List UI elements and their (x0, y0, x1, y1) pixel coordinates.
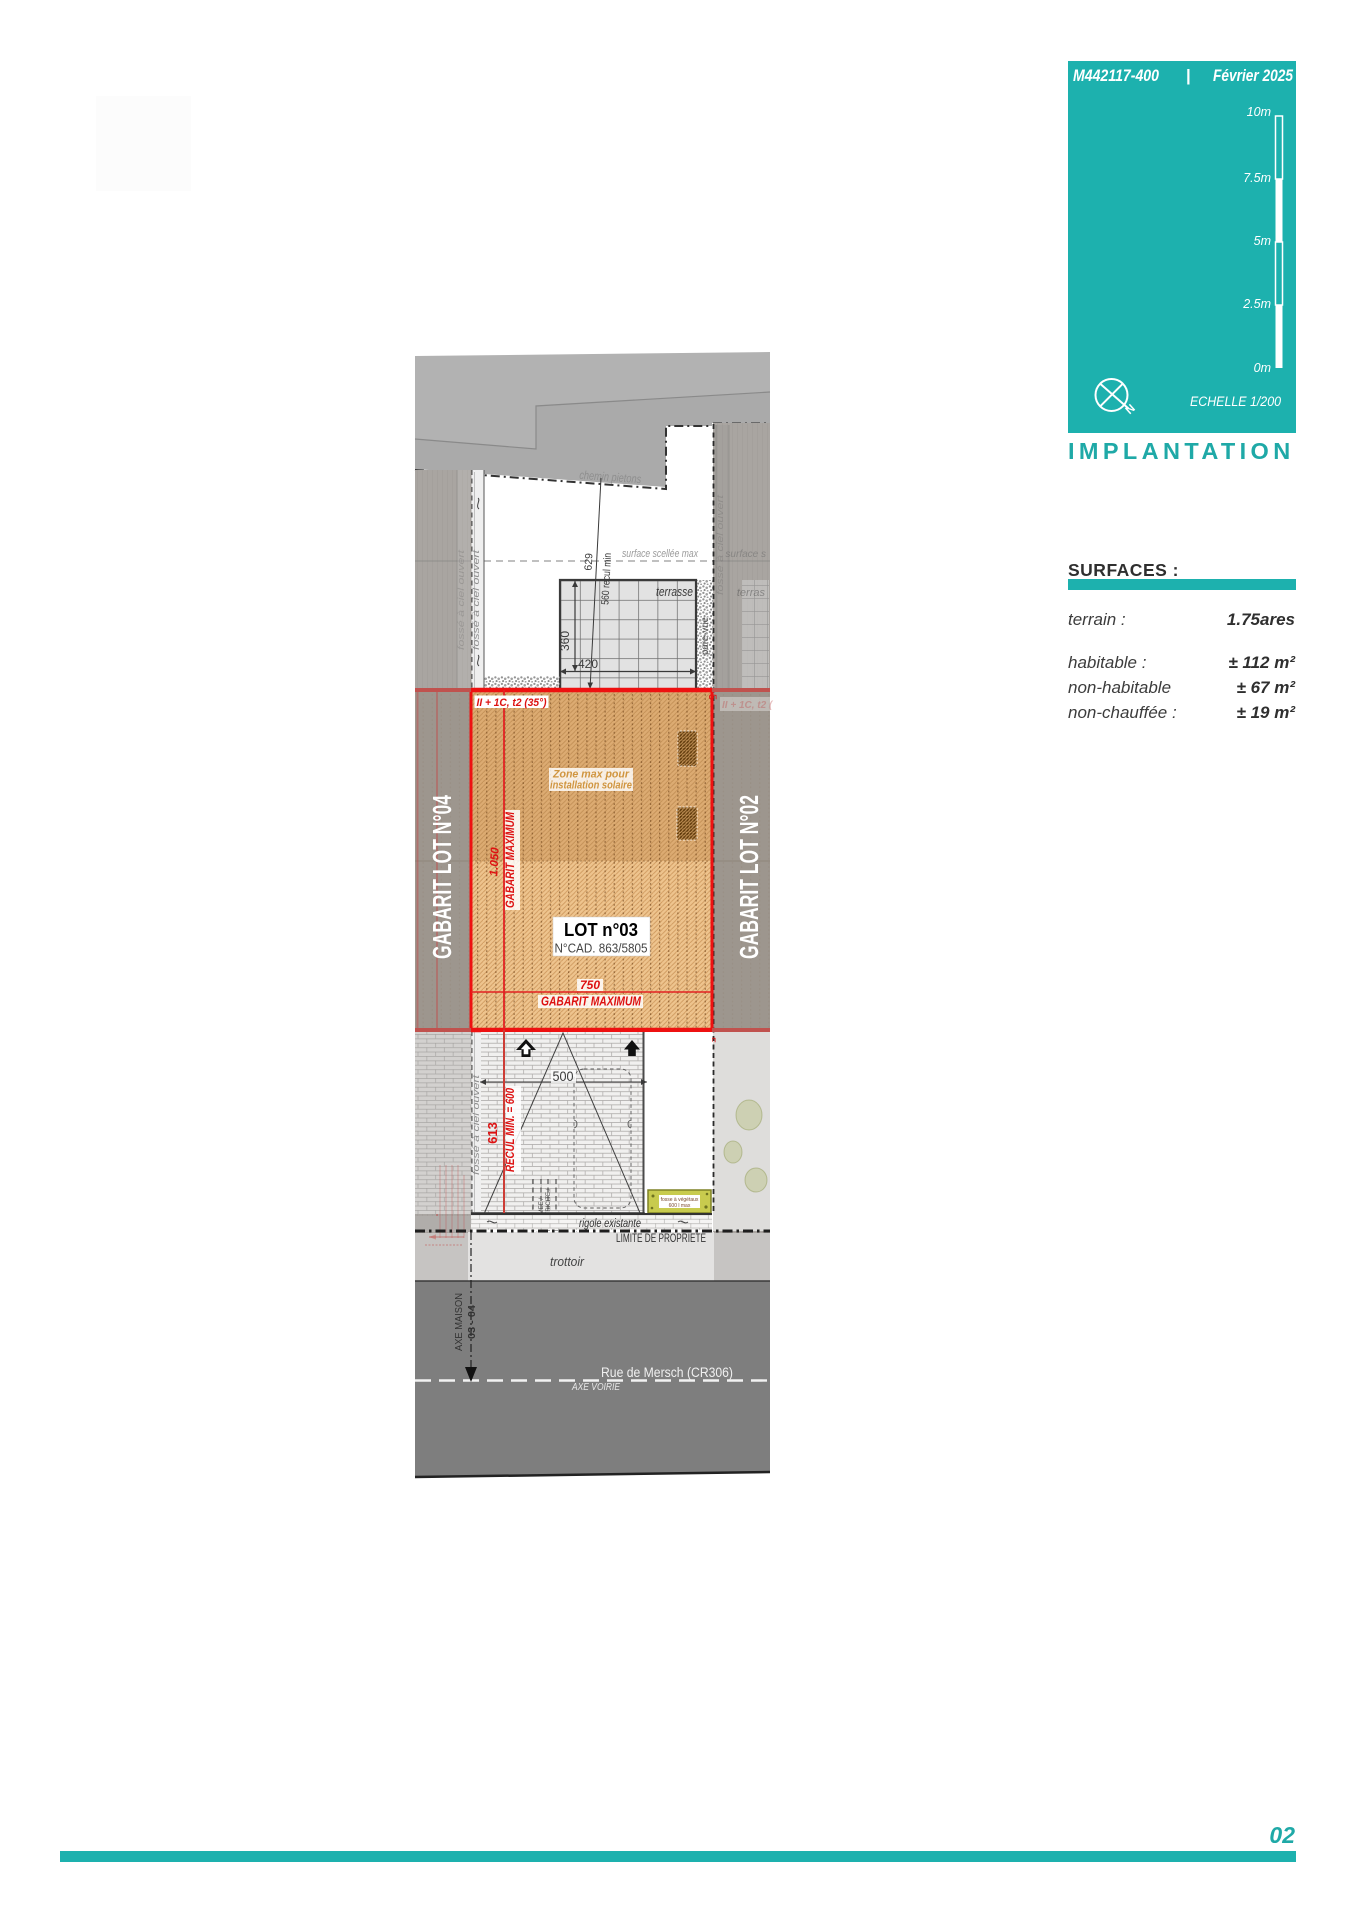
svg-text:terras: terras (737, 587, 766, 599)
svg-text:non-habitable: non-habitable (1068, 678, 1171, 697)
svg-text:surface scellée max: surface scellée max (622, 548, 698, 560)
svg-text:ECHELLE 1/200: ECHELLE 1/200 (1190, 394, 1281, 409)
svg-text:613: 613 (485, 1122, 500, 1144)
svg-text:installation solaire: installation solaire (550, 780, 632, 792)
svg-text:600 l max: 600 l max (669, 1203, 691, 1209)
svg-text:N°CAD. 863/5805: N°CAD. 863/5805 (555, 941, 648, 956)
svg-text:02: 02 (1269, 1822, 1295, 1848)
svg-text:fossé à ciel ouvert: fossé à ciel ouvert (471, 1074, 481, 1175)
svg-text:AXE VOIRIE: AXE VOIRIE (571, 1382, 620, 1393)
svg-text:1.75ares: 1.75ares (1227, 610, 1295, 629)
svg-text:GABARIT LOT N°02: GABARIT LOT N°02 (734, 795, 764, 959)
svg-text:7.5m: 7.5m (1243, 171, 1271, 185)
svg-text:500: 500 (553, 1068, 574, 1084)
svg-text:5m: 5m (1254, 234, 1271, 248)
svg-text:non-chauffée :: non-chauffée : (1068, 703, 1177, 722)
svg-text:terrasse: terrasse (656, 584, 693, 599)
svg-text:2.5m: 2.5m (1242, 297, 1271, 311)
svg-text:LIMITE DE PROPRIETE: LIMITE DE PROPRIETE (616, 1231, 706, 1245)
svg-text:|: | (1186, 66, 1191, 85)
svg-text:5: 5 (706, 694, 718, 700)
svg-text:± 112 m²: ± 112 m² (1228, 653, 1296, 672)
svg-text:pare-vue: pare-vue (700, 617, 711, 655)
svg-text:10m: 10m (1247, 105, 1271, 119)
svg-text:Rue de Mersch (CR306): Rue de Mersch (CR306) (601, 1365, 733, 1380)
svg-text:II + 1C, t2 (: II + 1C, t2 ( (722, 700, 774, 711)
svg-text:fossé à ciel ouvert: fossé à ciel ouvert (715, 494, 725, 595)
svg-text:03 - 04: 03 - 04 (467, 1305, 478, 1339)
svg-text:Février 2025: Février 2025 (1213, 66, 1293, 85)
svg-text:1.050: 1.050 (488, 847, 502, 877)
svg-text:AXE MAISON: AXE MAISON (454, 1293, 465, 1351)
svg-text:LOT n°03: LOT n°03 (564, 920, 638, 940)
svg-text:± 19 m²: ± 19 m² (1237, 703, 1297, 722)
svg-text:750: 750 (580, 980, 601, 992)
svg-text:RECUL MIN. = 600: RECUL MIN. = 600 (503, 1088, 517, 1172)
svg-text:SURFACES :: SURFACES : (1068, 560, 1179, 580)
svg-text:GABARIT MAXIMUM: GABARIT MAXIMUM (503, 811, 517, 908)
svg-text:fossé à ciel ouvert: fossé à ciel ouvert (471, 549, 481, 650)
svg-text:fossé à ciel ouvert: fossé à ciel ouvert (456, 549, 466, 650)
svg-text:terrain :: terrain : (1068, 610, 1126, 629)
svg-text:0m: 0m (1254, 361, 1271, 375)
svg-text:surface s: surface s (725, 549, 766, 560)
svg-text:629: 629 (583, 553, 596, 571)
svg-text:trottoir: trottoir (550, 1254, 585, 1269)
svg-text:rigole existante: rigole existante (579, 1216, 641, 1230)
svg-text:M442117-400: M442117-400 (1073, 66, 1159, 85)
svg-text:GABARIT LOT N°04: GABARIT LOT N°04 (427, 795, 457, 959)
svg-text:420: 420 (578, 657, 598, 671)
svg-text:IMPLANTATION: IMPLANTATION (1068, 438, 1295, 464)
svg-text:II + 1C, t2 (35°): II + 1C, t2 (35°) (477, 697, 547, 709)
svg-text:habitable :: habitable : (1068, 653, 1147, 672)
svg-text:± 67 m²: ± 67 m² (1237, 678, 1297, 697)
svg-text:GABARIT MAXIMUM: GABARIT MAXIMUM (541, 995, 641, 1009)
svg-text:360: 360 (558, 631, 572, 651)
